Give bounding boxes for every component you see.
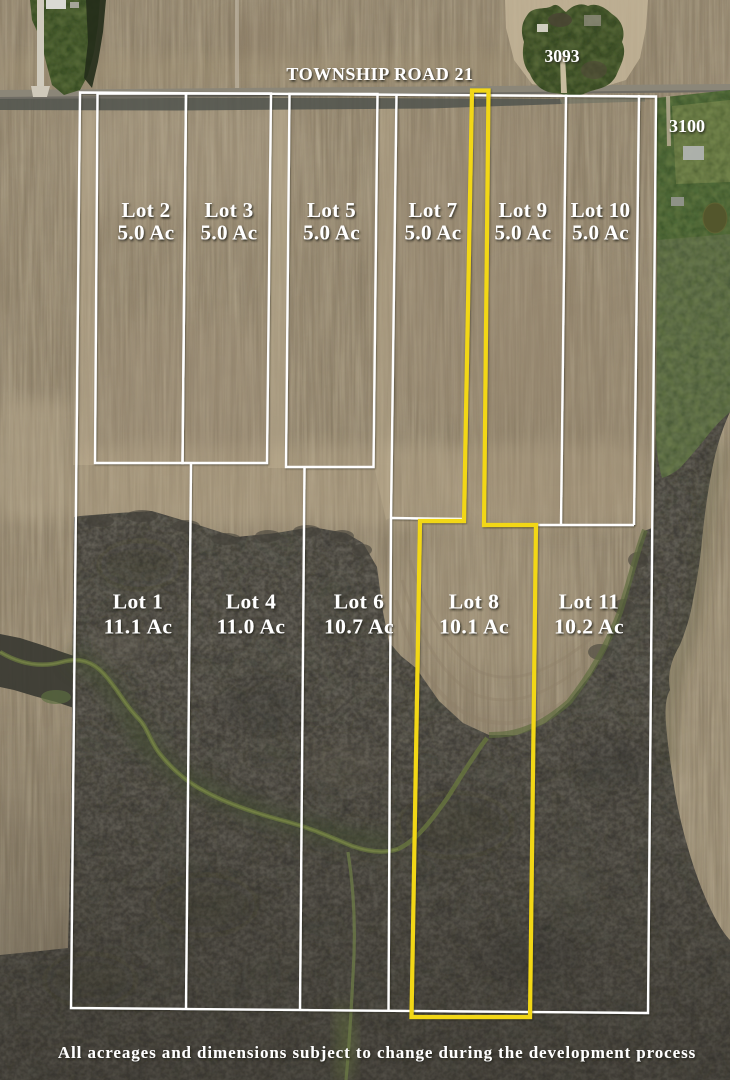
svg-text:Lot 1: Lot 1: [113, 590, 164, 614]
svg-text:10.1 Ac: 10.1 Ac: [439, 615, 509, 639]
svg-text:Lot 11: Lot 11: [559, 590, 620, 614]
svg-text:3093: 3093: [545, 46, 580, 66]
svg-text:5.0 Ac: 5.0 Ac: [405, 221, 462, 245]
svg-text:Lot 6: Lot 6: [334, 590, 385, 614]
svg-text:Lot 2: Lot 2: [122, 198, 171, 222]
svg-text:5.0 Ac: 5.0 Ac: [495, 221, 552, 245]
svg-text:TOWNSHIP ROAD 21: TOWNSHIP ROAD 21: [286, 64, 473, 84]
svg-text:5.0 Ac: 5.0 Ac: [303, 221, 360, 245]
svg-text:Lot 8: Lot 8: [449, 590, 500, 614]
svg-text:Lot 9: Lot 9: [499, 198, 548, 222]
svg-text:3100: 3100: [669, 116, 705, 136]
svg-text:Lot 10: Lot 10: [571, 198, 631, 222]
svg-text:11.0 Ac: 11.0 Ac: [217, 615, 286, 639]
svg-text:Lot 3: Lot 3: [205, 198, 254, 222]
svg-text:11.1 Ac: 11.1 Ac: [104, 615, 173, 639]
svg-text:Lot 7: Lot 7: [409, 198, 458, 222]
svg-text:All acreages and dimensions su: All acreages and dimensions subject to c…: [58, 1043, 696, 1062]
svg-text:10.2 Ac: 10.2 Ac: [554, 615, 624, 639]
svg-text:Lot 4: Lot 4: [226, 590, 277, 614]
svg-text:Lot 5: Lot 5: [307, 198, 356, 222]
svg-text:5.0 Ac: 5.0 Ac: [572, 221, 629, 245]
svg-text:10.7 Ac: 10.7 Ac: [324, 615, 394, 639]
svg-text:5.0 Ac: 5.0 Ac: [118, 221, 175, 245]
svg-text:5.0 Ac: 5.0 Ac: [201, 221, 258, 245]
